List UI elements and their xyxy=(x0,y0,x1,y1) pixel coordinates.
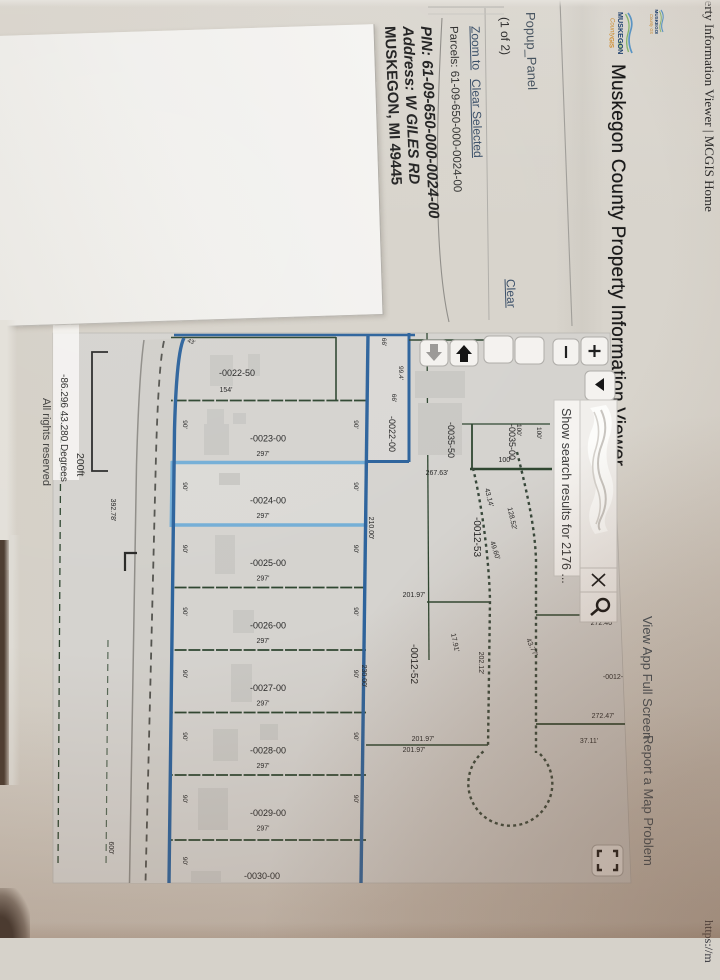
svg-text:202.12': 202.12' xyxy=(477,652,484,675)
svg-text:-0012-: -0012- xyxy=(603,674,624,681)
svg-text:100': 100' xyxy=(515,424,522,436)
svg-text:-0029-00: -0029-00 xyxy=(250,808,286,818)
svg-text:201.97': 201.97' xyxy=(412,736,435,743)
svg-text:297': 297' xyxy=(256,513,269,520)
svg-text:297': 297' xyxy=(256,576,269,583)
svg-text:154': 154' xyxy=(219,387,232,394)
svg-text:297': 297' xyxy=(256,638,269,645)
svg-text:297': 297' xyxy=(256,701,269,708)
svg-text:-86.296 43.280 Degrees: -86.296 43.280 Degrees xyxy=(58,374,69,482)
svg-text:90': 90' xyxy=(352,732,359,740)
svg-text:201.97': 201.97' xyxy=(403,592,426,599)
svg-text:210.00': 210.00' xyxy=(367,517,374,540)
svg-text:-0027-00: -0027-00 xyxy=(250,683,286,693)
svg-text:-0012-53: -0012-53 xyxy=(471,517,482,557)
svg-text:90': 90' xyxy=(181,545,188,553)
svg-text:-0023-00: -0023-00 xyxy=(250,434,286,444)
svg-text:-0022-00: -0022-00 xyxy=(387,416,397,452)
svg-text:90': 90' xyxy=(181,732,188,740)
svg-text:297': 297' xyxy=(256,763,269,770)
svg-text:66': 66' xyxy=(380,338,387,346)
svg-text:90': 90' xyxy=(181,670,188,678)
svg-text:-0024-00: -0024-00 xyxy=(250,496,286,506)
svg-text:90': 90' xyxy=(181,795,188,803)
svg-text:-0012-52: -0012-52 xyxy=(408,644,419,684)
svg-text:-0035-50: -0035-50 xyxy=(446,422,456,458)
svg-text:-0026-00: -0026-00 xyxy=(250,621,286,631)
svg-text:99.4': 99.4' xyxy=(397,366,404,380)
svg-text:272.47': 272.47' xyxy=(592,713,615,720)
svg-text:90': 90' xyxy=(352,795,359,803)
svg-text:201.97': 201.97' xyxy=(403,747,426,754)
svg-text:-0030-00: -0030-00 xyxy=(244,871,280,881)
svg-text:100': 100' xyxy=(498,457,511,464)
svg-text:90': 90' xyxy=(181,420,188,428)
svg-text:297': 297' xyxy=(256,826,269,833)
svg-text:200ft: 200ft xyxy=(74,453,86,476)
svg-text:-0025-00: -0025-00 xyxy=(250,558,286,568)
svg-text:90': 90' xyxy=(181,607,188,615)
svg-text:37.11': 37.11' xyxy=(580,738,598,745)
svg-text:-0028-00: -0028-00 xyxy=(250,746,286,756)
svg-text:90': 90' xyxy=(352,482,359,490)
svg-text:267.63': 267.63' xyxy=(426,470,449,477)
svg-text:90': 90' xyxy=(352,420,359,428)
svg-text:297': 297' xyxy=(256,451,269,458)
svg-text:90': 90' xyxy=(352,545,359,553)
svg-text:392.78': 392.78' xyxy=(109,499,116,522)
svg-text:Show search results for 2176 .: Show search results for 2176 ... xyxy=(559,408,573,584)
svg-text:90': 90' xyxy=(181,857,188,865)
svg-text:66': 66' xyxy=(390,394,397,402)
svg-text:100': 100' xyxy=(535,427,542,439)
svg-text:90': 90' xyxy=(352,670,359,678)
svg-text:-0022-50: -0022-50 xyxy=(219,368,255,378)
svg-text:90': 90' xyxy=(181,482,188,490)
svg-text:230.00': 230.00' xyxy=(360,665,367,688)
svg-text:600': 600' xyxy=(107,841,114,854)
svg-text:90': 90' xyxy=(352,607,359,615)
